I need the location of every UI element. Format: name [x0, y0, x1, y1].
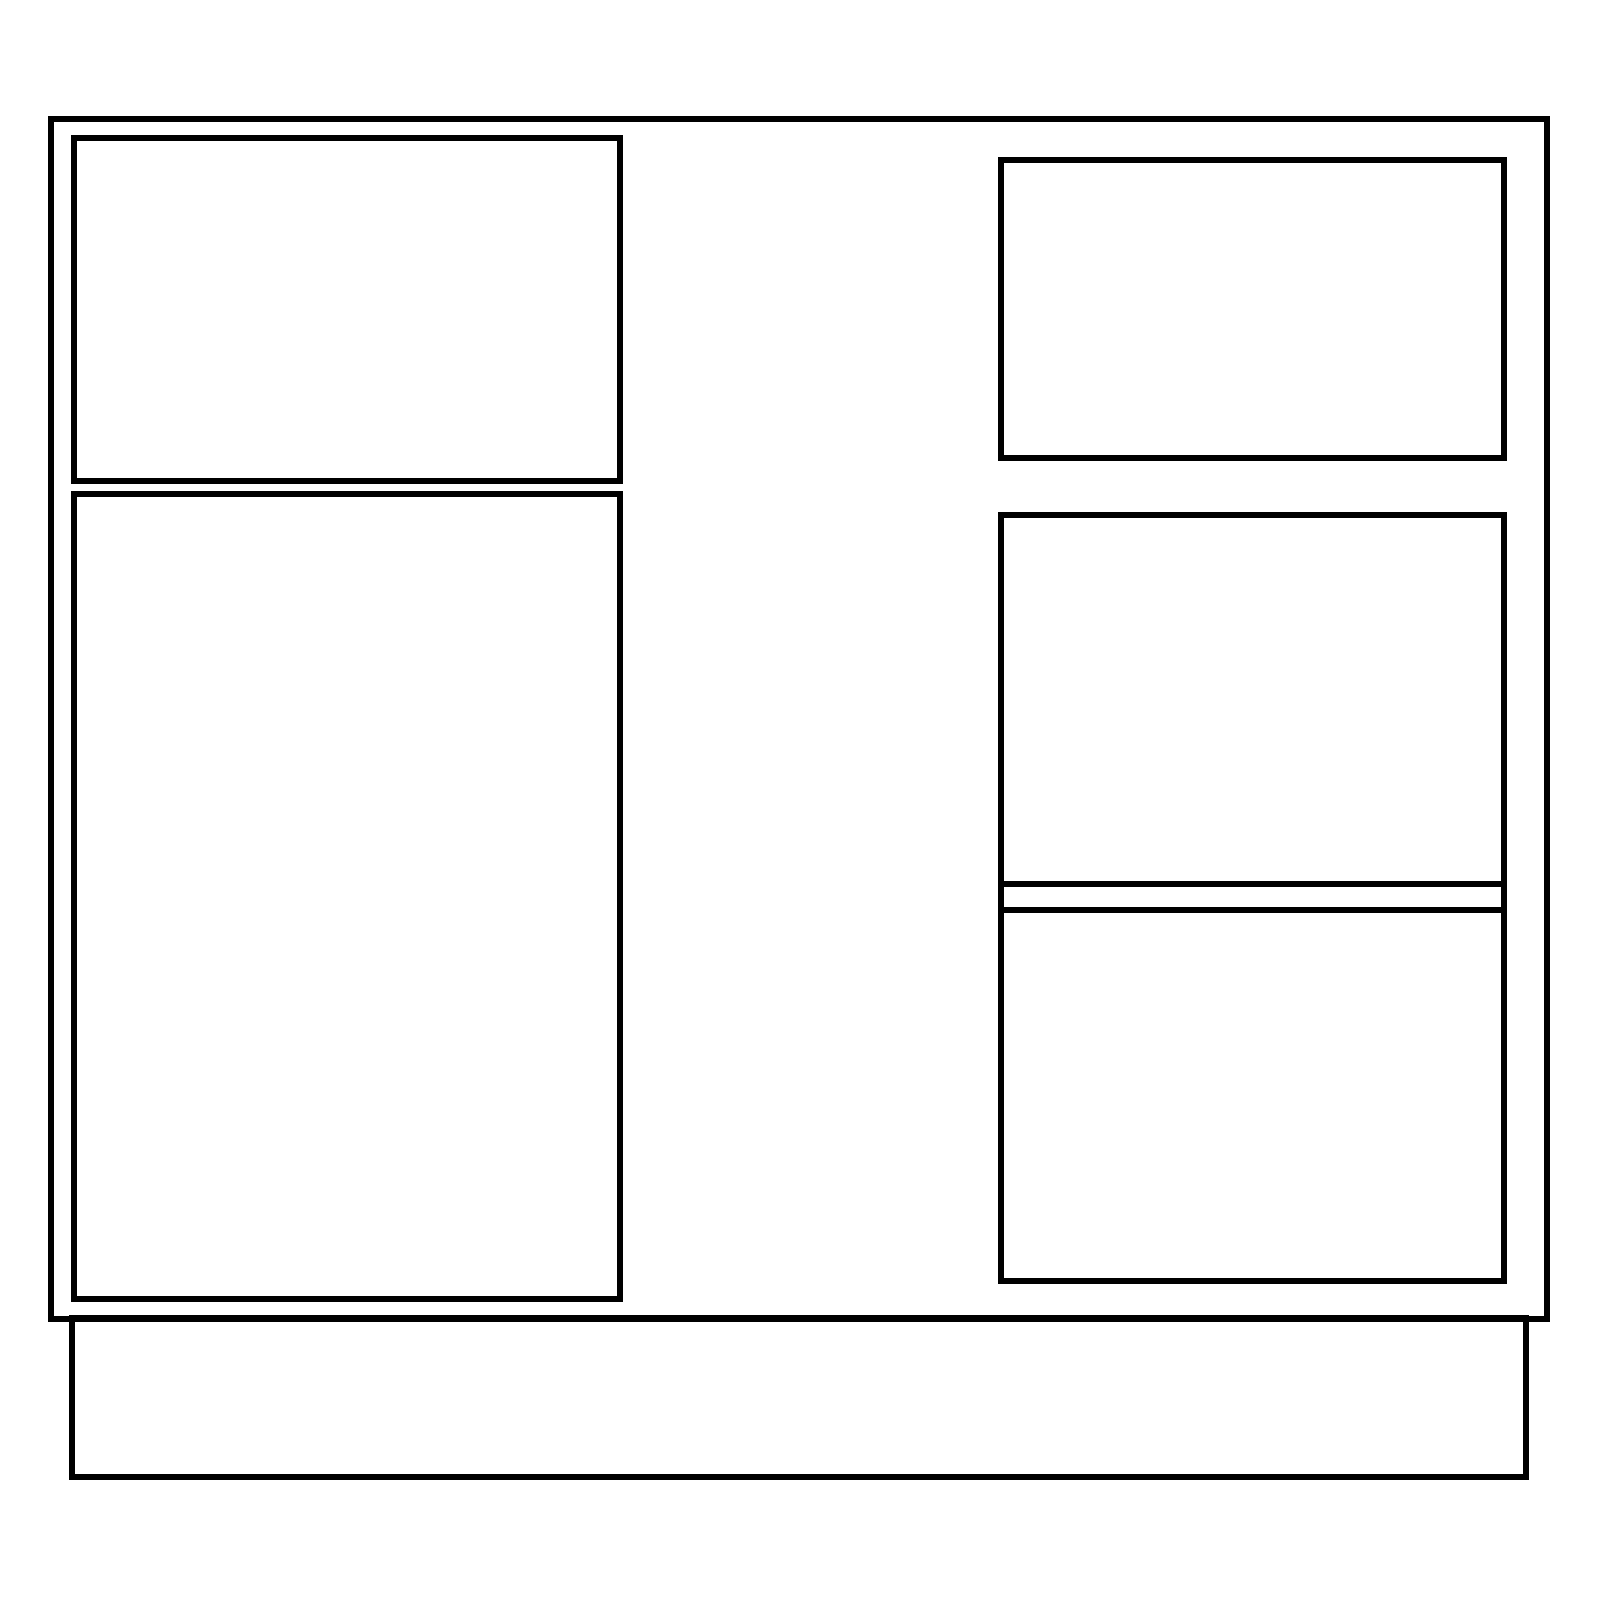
right-drawer-stack	[998, 512, 1507, 1284]
toe-kick-base	[69, 1315, 1529, 1480]
cabinet-drawing	[0, 0, 1600, 1600]
right-stack-divider-upper	[998, 881, 1507, 887]
right-stack-divider-lower	[998, 907, 1507, 913]
right-top-drawer-front	[998, 157, 1507, 461]
left-door-panel	[71, 491, 623, 1302]
left-drawer-front	[71, 135, 623, 484]
